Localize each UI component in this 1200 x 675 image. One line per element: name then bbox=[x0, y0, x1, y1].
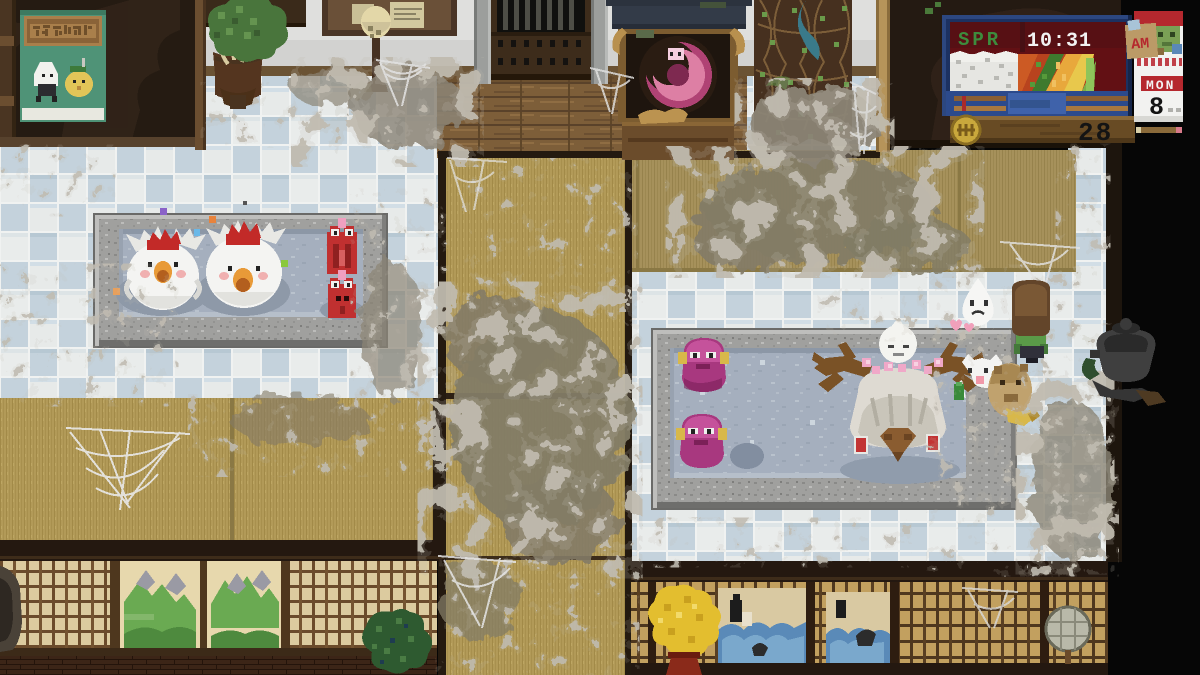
svg-text:AM: AM bbox=[1131, 35, 1150, 53]
svg-text:28: 28 bbox=[1078, 118, 1113, 148]
svg-text:8: 8 bbox=[1149, 93, 1164, 122]
svg-text:MON: MON bbox=[1146, 78, 1175, 93]
svg-text:10:31: 10:31 bbox=[1027, 30, 1092, 53]
svg-text:SPR: SPR bbox=[958, 29, 1001, 51]
